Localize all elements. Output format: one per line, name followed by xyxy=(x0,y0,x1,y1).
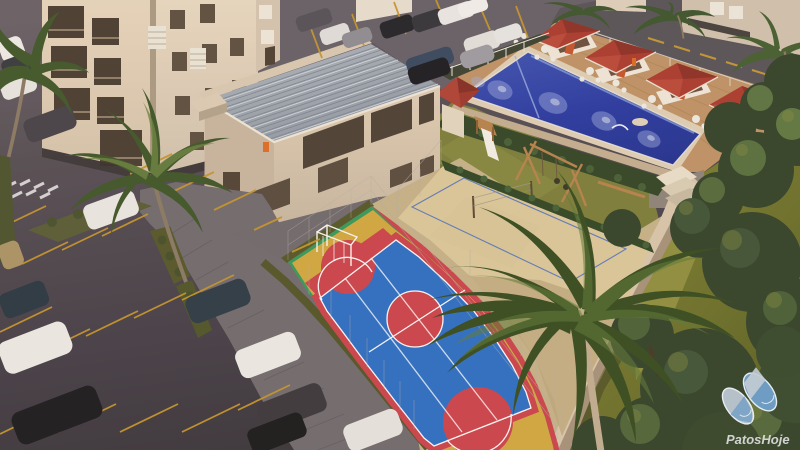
svg-text:PatosHoje: PatosHoje xyxy=(726,432,790,447)
